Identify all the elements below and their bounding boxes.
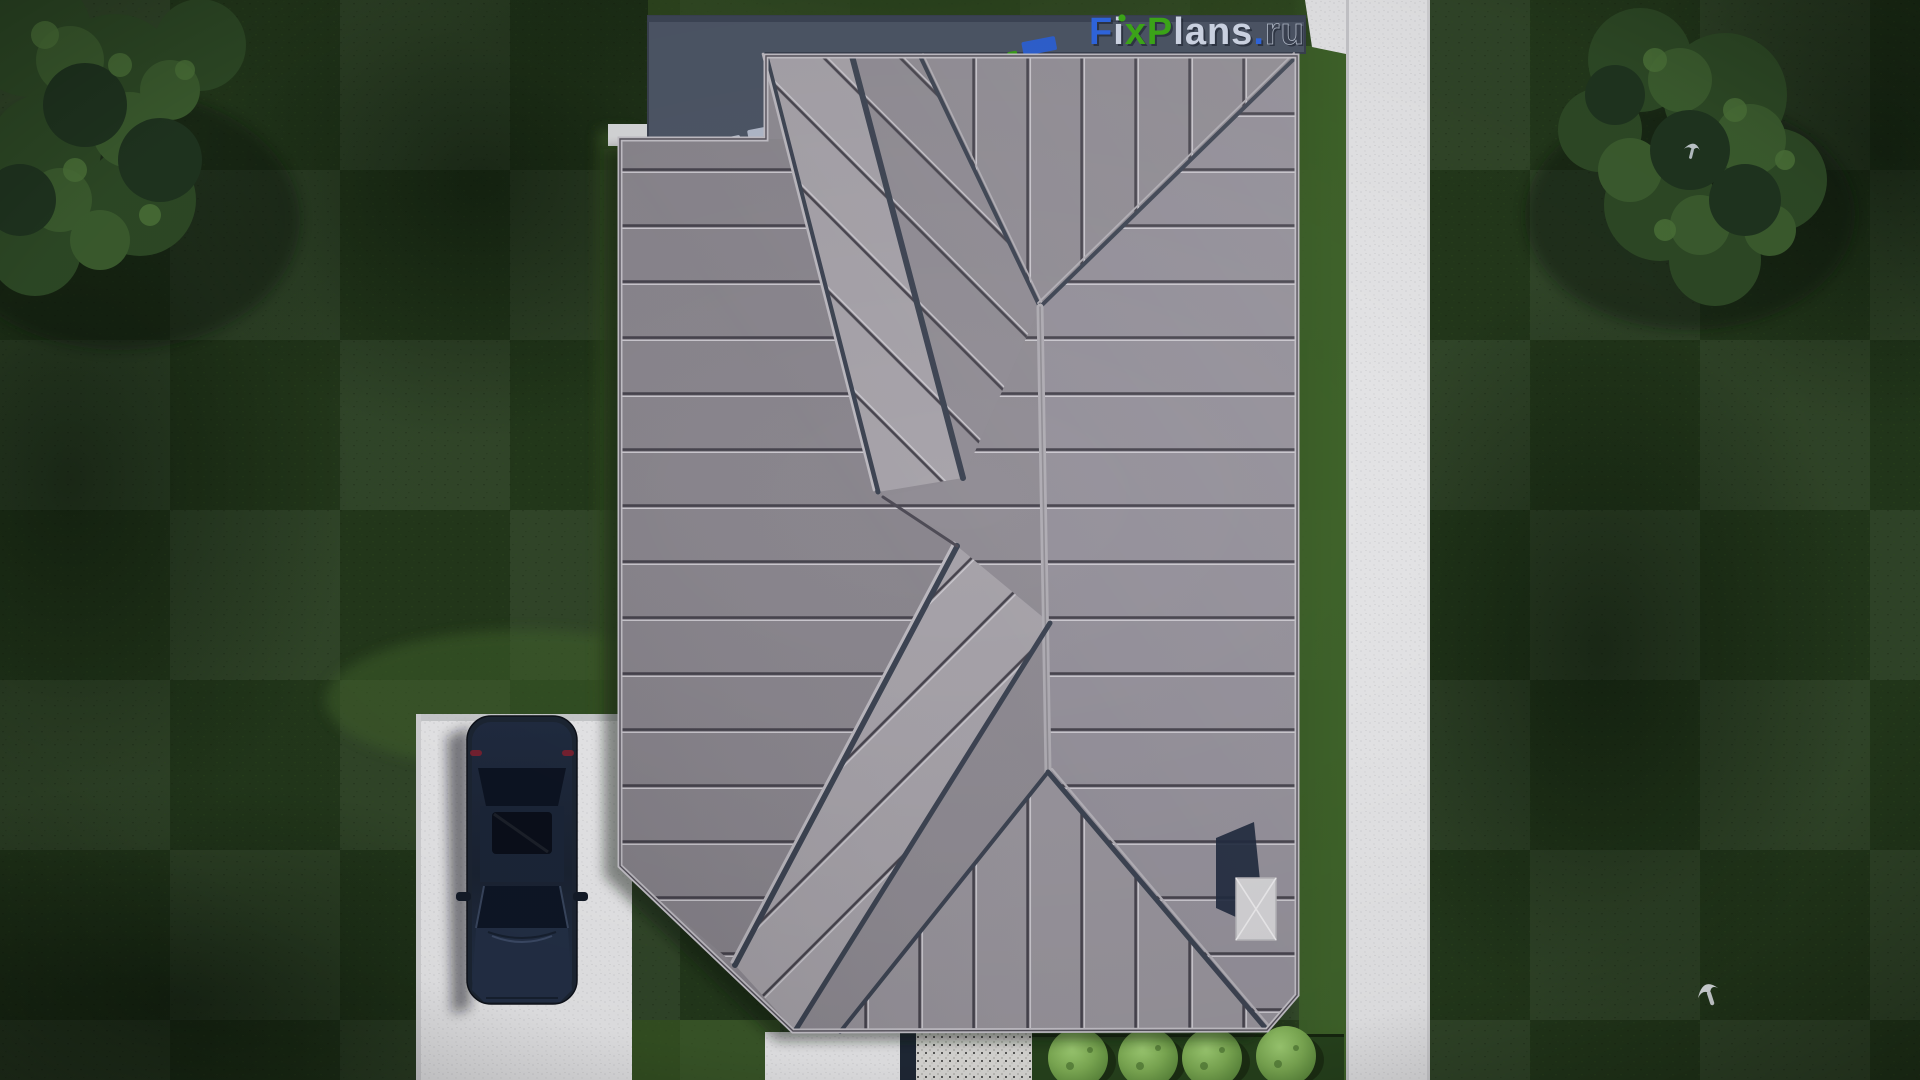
vignette <box>0 0 1920 1080</box>
logo-i-dot <box>1118 14 1125 21</box>
logo-letter-f: F <box>1089 11 1113 53</box>
scene-canvas: FixPlans.ru FixPlans.ru <box>0 0 1920 1080</box>
logo-dot: . <box>1253 11 1265 53</box>
logo-letter-x: x <box>1125 11 1147 53</box>
logo-domain: ru <box>1265 11 1305 53</box>
logo-letter-p: P <box>1147 11 1173 53</box>
logo-letters-lans: lans <box>1173 11 1253 53</box>
aerial-render-stage: FixPlans.ru FixPlans.ru <box>0 0 1920 1080</box>
watermark-logo: FixPlans.ru FixPlans.ru <box>1089 11 1307 55</box>
